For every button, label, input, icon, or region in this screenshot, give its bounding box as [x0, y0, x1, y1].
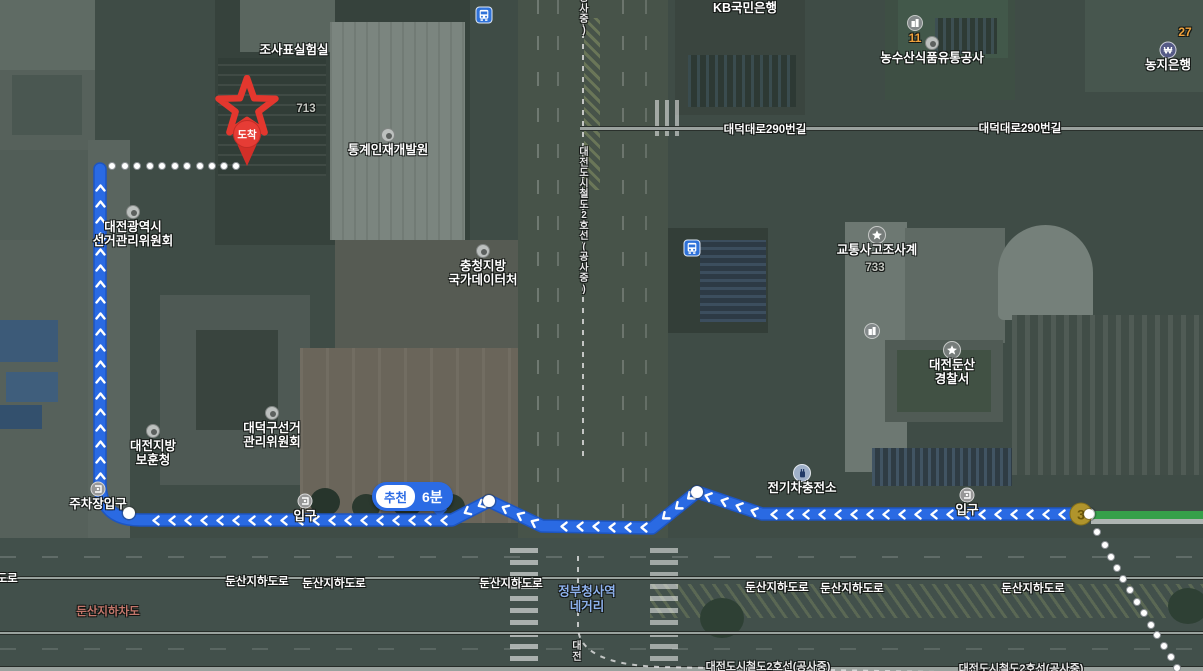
entrance-icon[interactable] [960, 488, 975, 503]
poi-label: 대전광역시선거관리위원회 [93, 221, 174, 248]
poi-label: 대덕구선거관리위원회 [243, 422, 301, 449]
ev-charger-icon[interactable] [793, 464, 811, 482]
poi-label: 충청지방국가데이터처 [448, 260, 517, 287]
poi-dot-icon[interactable] [381, 128, 395, 142]
poi-label: 대전지방보훈청 [130, 440, 176, 467]
poi-label: 주차장입구 [69, 498, 127, 512]
badge-tag: 추천 [376, 485, 415, 508]
poi-dot-icon[interactable] [925, 36, 939, 50]
route-start-dot [1084, 509, 1094, 519]
poi-label: KB국민은행 [713, 2, 777, 16]
building-icon[interactable] [907, 15, 923, 31]
poi-dot-icon[interactable] [476, 244, 490, 258]
poi-label: 조사표실험실 [259, 44, 328, 58]
poi-dot-icon[interactable] [265, 406, 279, 420]
poi-label: 733 [865, 262, 884, 276]
entrance-icon[interactable] [298, 494, 313, 509]
poi-label: 교통사고조사계 [837, 244, 918, 258]
badge-duration: 6분 [422, 487, 443, 507]
poi-markers: 조사표실험실713통계인재개발원대전광역시선거관리위원회충청지방국가데이터처대덕… [0, 0, 1203, 671]
entrance-icon[interactable] [91, 482, 106, 497]
poi-dot-icon[interactable] [126, 205, 140, 219]
poi-label: 농수산식품유통공사 [880, 52, 984, 66]
building-icon[interactable] [864, 323, 880, 339]
poi-label: 전기차충전소 [767, 482, 836, 496]
poi-dot-icon[interactable] [146, 424, 160, 438]
poi-label: 입구 [955, 504, 978, 518]
bus-stop-icon[interactable] [684, 240, 701, 257]
destination-pin[interactable]: 도착 [227, 120, 267, 168]
poi-label: 농지은행 [1145, 59, 1191, 73]
police-icon[interactable] [868, 226, 886, 244]
poi-label: 11 [909, 32, 922, 46]
bus-stop-icon[interactable] [476, 7, 493, 24]
poi-label: 통계인재개발원 [348, 144, 429, 158]
poi-label: 27 [1178, 26, 1191, 40]
police-icon[interactable] [943, 341, 961, 359]
svg-text:도착: 도착 [237, 128, 257, 141]
poi-label: 대전둔산경찰서 [929, 359, 975, 386]
bank-won-icon[interactable]: ₩ [1160, 42, 1177, 59]
poi-label: 713 [296, 103, 315, 117]
map-viewport[interactable]: 조사표실험실713통계인재개발원대전광역시선거관리위원회충청지방국가데이터처대덕… [0, 0, 1203, 671]
route-time-badge[interactable]: 추천 6분 [372, 482, 453, 511]
poi-label: 입구 [293, 510, 316, 524]
